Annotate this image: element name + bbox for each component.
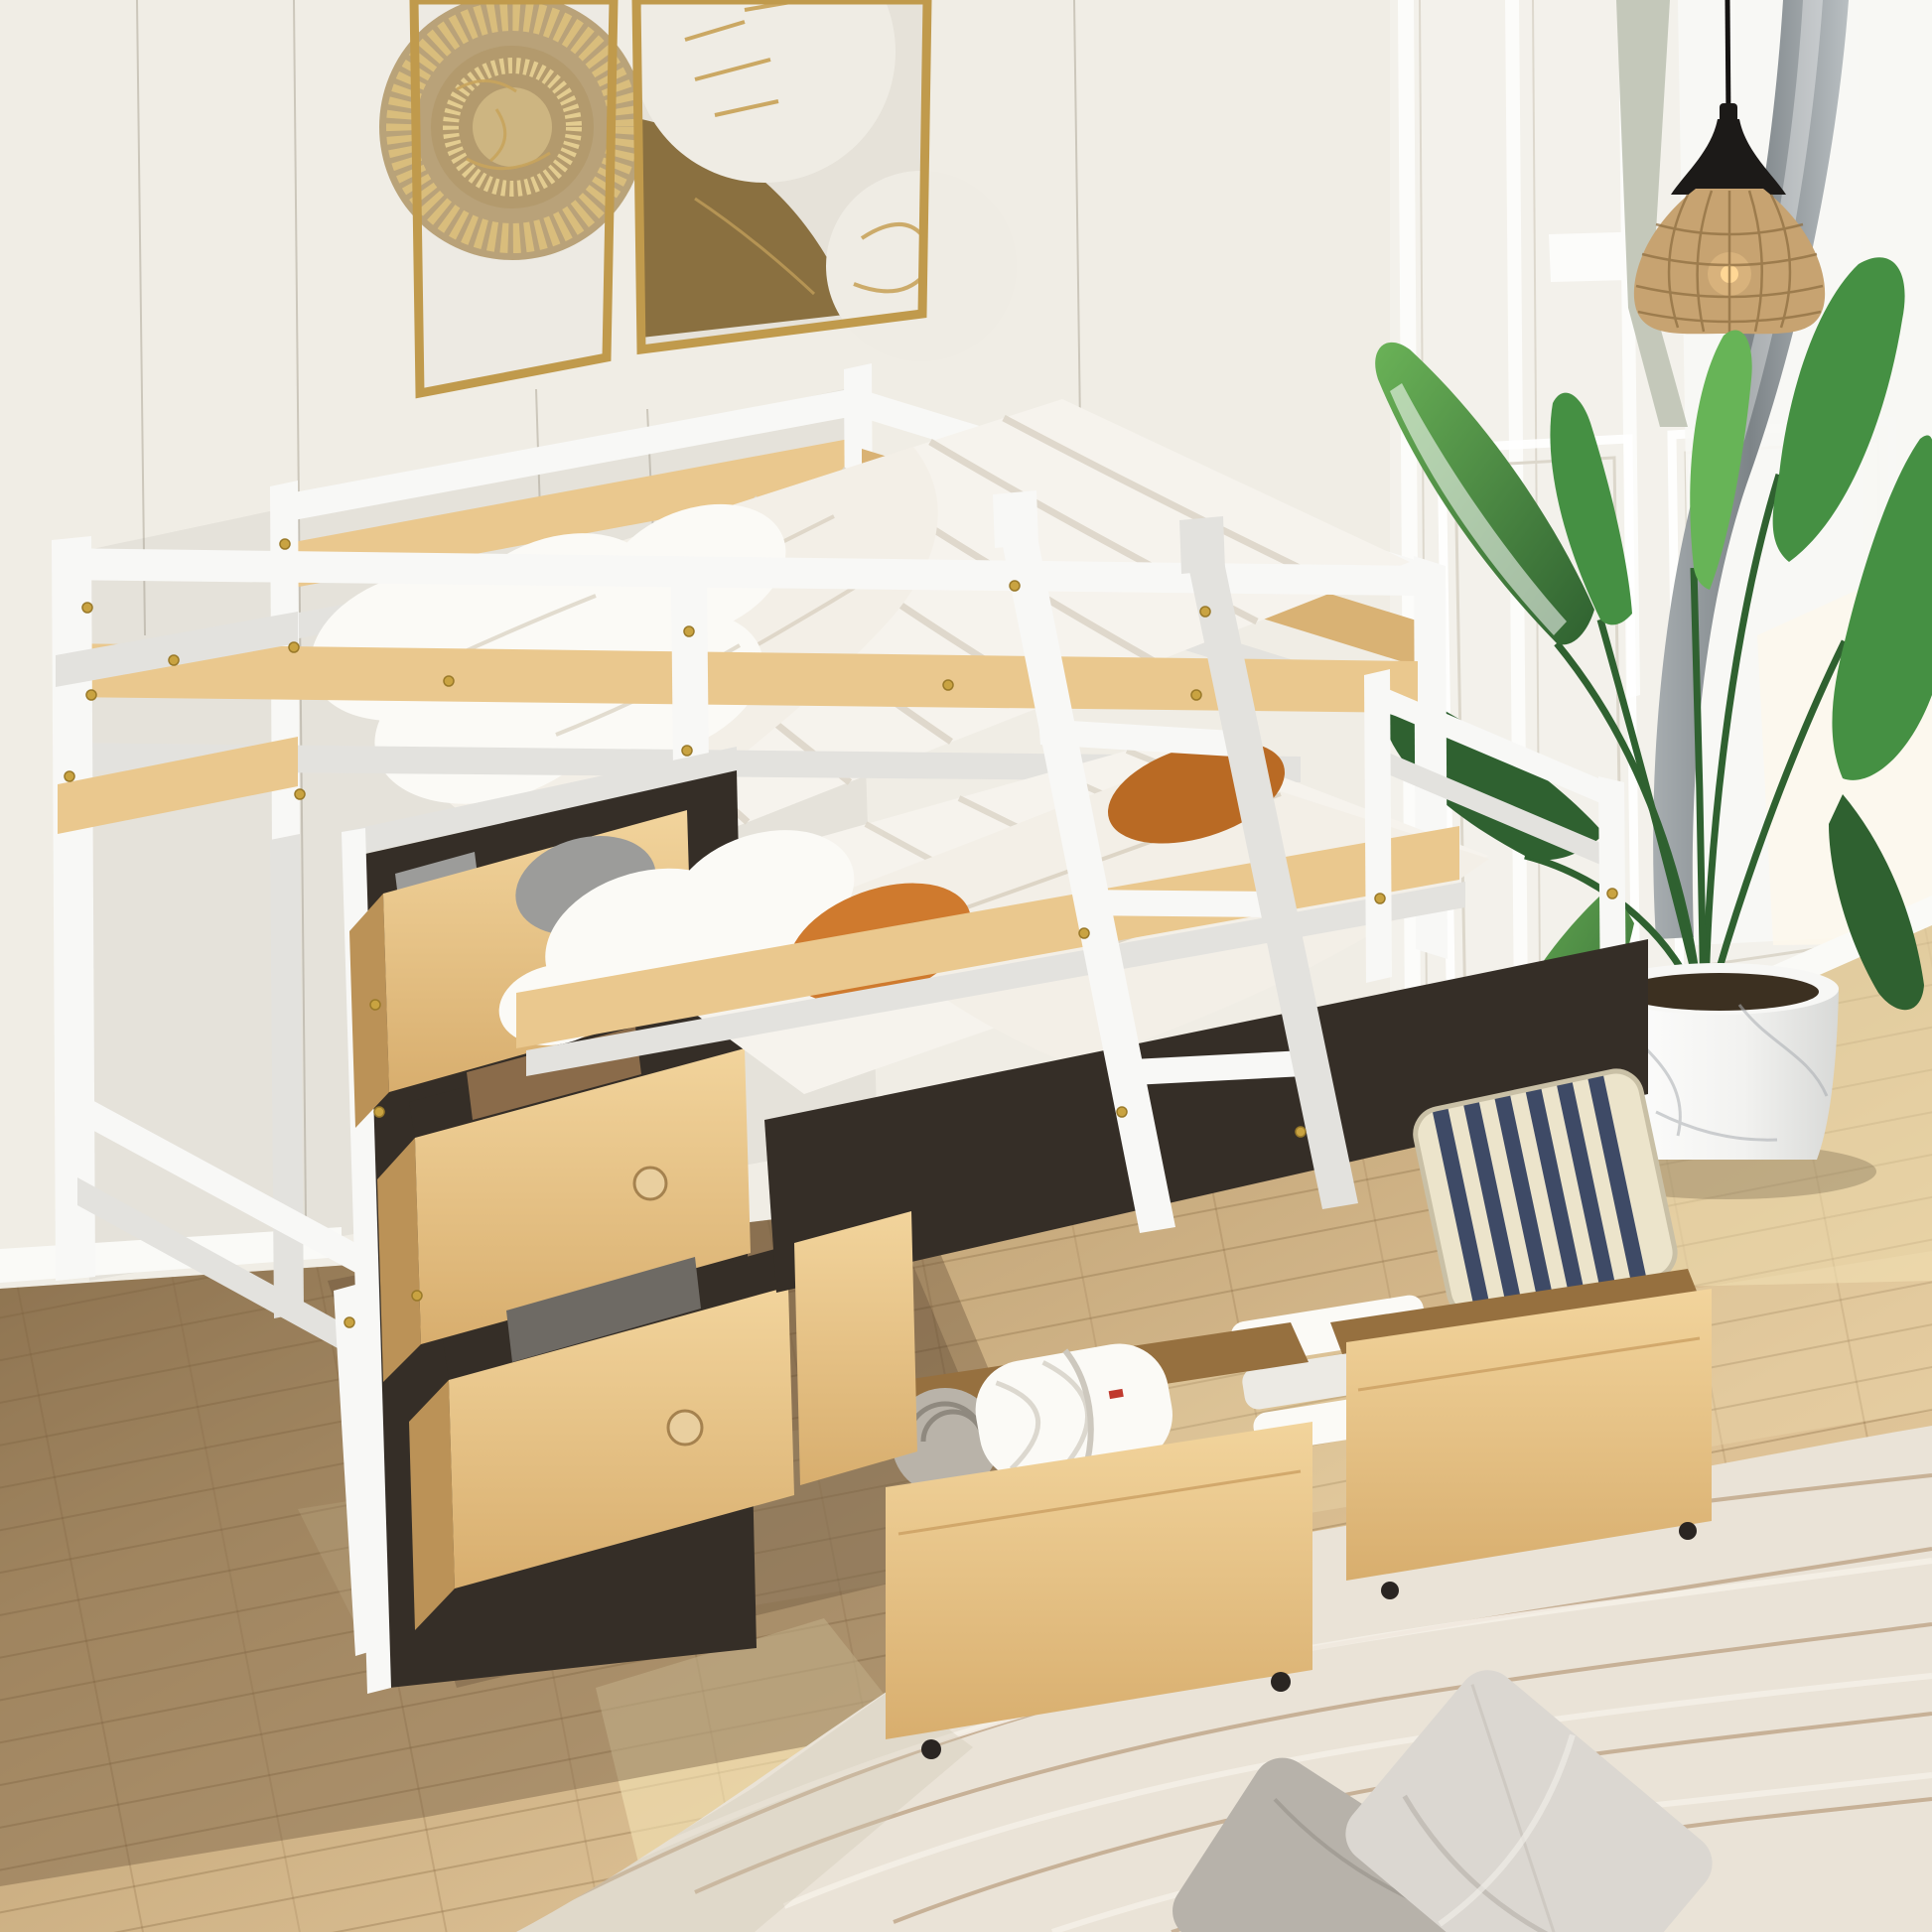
bedroom-product-photo	[0, 0, 1932, 1932]
head-front-leg	[52, 536, 95, 1281]
caster-wheel	[921, 1739, 941, 1759]
lower-guard-post-left	[1364, 669, 1392, 983]
front-rail-bracket	[671, 580, 709, 770]
lamp-cord	[1727, 0, 1728, 119]
framed-artwork-left	[379, 0, 645, 393]
underbed-drawer-left	[794, 1211, 917, 1485]
ladder-hook-left	[993, 490, 1038, 548]
ladder-hook-right	[1179, 516, 1225, 574]
caster-wheel	[1679, 1522, 1697, 1540]
drawer-knob	[634, 1168, 666, 1199]
caster-wheel	[1271, 1672, 1291, 1692]
pot-soil	[1620, 973, 1819, 1011]
scene-canvas	[0, 0, 1932, 1932]
caster-wheel	[1381, 1582, 1399, 1599]
drawer-knob	[668, 1411, 702, 1445]
head-rear-leg	[270, 834, 304, 1318]
